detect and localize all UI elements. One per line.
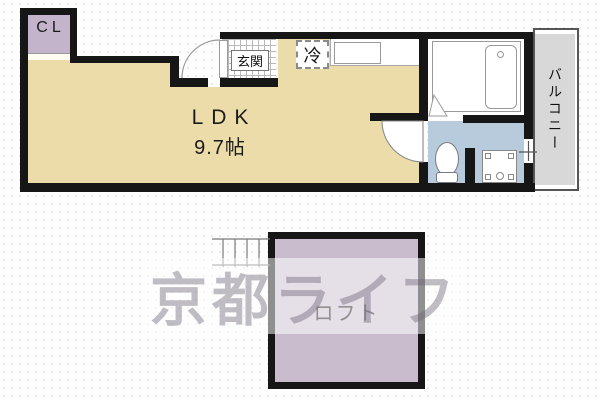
laundry-pan-corner [485, 174, 491, 180]
laundry-pan-icon [482, 150, 517, 183]
balcony-deck: バルコニー [535, 34, 575, 185]
wall-closet-right [70, 8, 77, 63]
genkan-label-box: 玄関 [231, 50, 269, 71]
refrigerator-label: 冷 [304, 42, 322, 68]
refrigerator-space: 冷 [296, 40, 329, 69]
genkan-label: 玄関 [237, 51, 263, 70]
wall-east [524, 32, 533, 192]
wall-bath-west [419, 32, 428, 121]
toilet-bowl-icon [435, 142, 459, 176]
bathtub-faucet-icon [497, 51, 504, 58]
entrance-door-leaf [219, 40, 228, 78]
washroom-window [524, 139, 533, 163]
entrance-door-swing-arc [182, 40, 220, 78]
wall-entry-step-horizontal [170, 78, 208, 87]
wall-north [220, 32, 533, 39]
floor-plan: バルコニー 冷 [0, 0, 600, 400]
balcony-label: バルコニー [545, 67, 565, 152]
watermark: 京都ライフ [146, 258, 464, 334]
toilet-base-icon [436, 172, 458, 183]
ldk-room-label: LDK 9.7帖 [160, 106, 280, 160]
wall-ldk-top [70, 56, 179, 63]
ldk-size: 9.7帖 [160, 131, 280, 160]
wall-washroom-stub [370, 113, 428, 121]
laundry-pan-corner [508, 174, 514, 180]
closet-label: CL [27, 19, 70, 37]
wall-closet-top [20, 8, 77, 15]
laundry-drain-icon [496, 172, 504, 180]
ldk-floor-left [28, 58, 170, 183]
laundry-pan-corner [485, 153, 491, 159]
wall-bath-south [463, 115, 533, 123]
wall-genkan-bottom [220, 78, 278, 87]
ldk-name: LDK [160, 106, 280, 130]
closet-sliding-door [27, 53, 70, 60]
wall-south [20, 183, 535, 192]
balcony: バルコニー [533, 28, 579, 191]
laundry-pan-corner [508, 153, 514, 159]
kitchen-sink [334, 42, 381, 64]
